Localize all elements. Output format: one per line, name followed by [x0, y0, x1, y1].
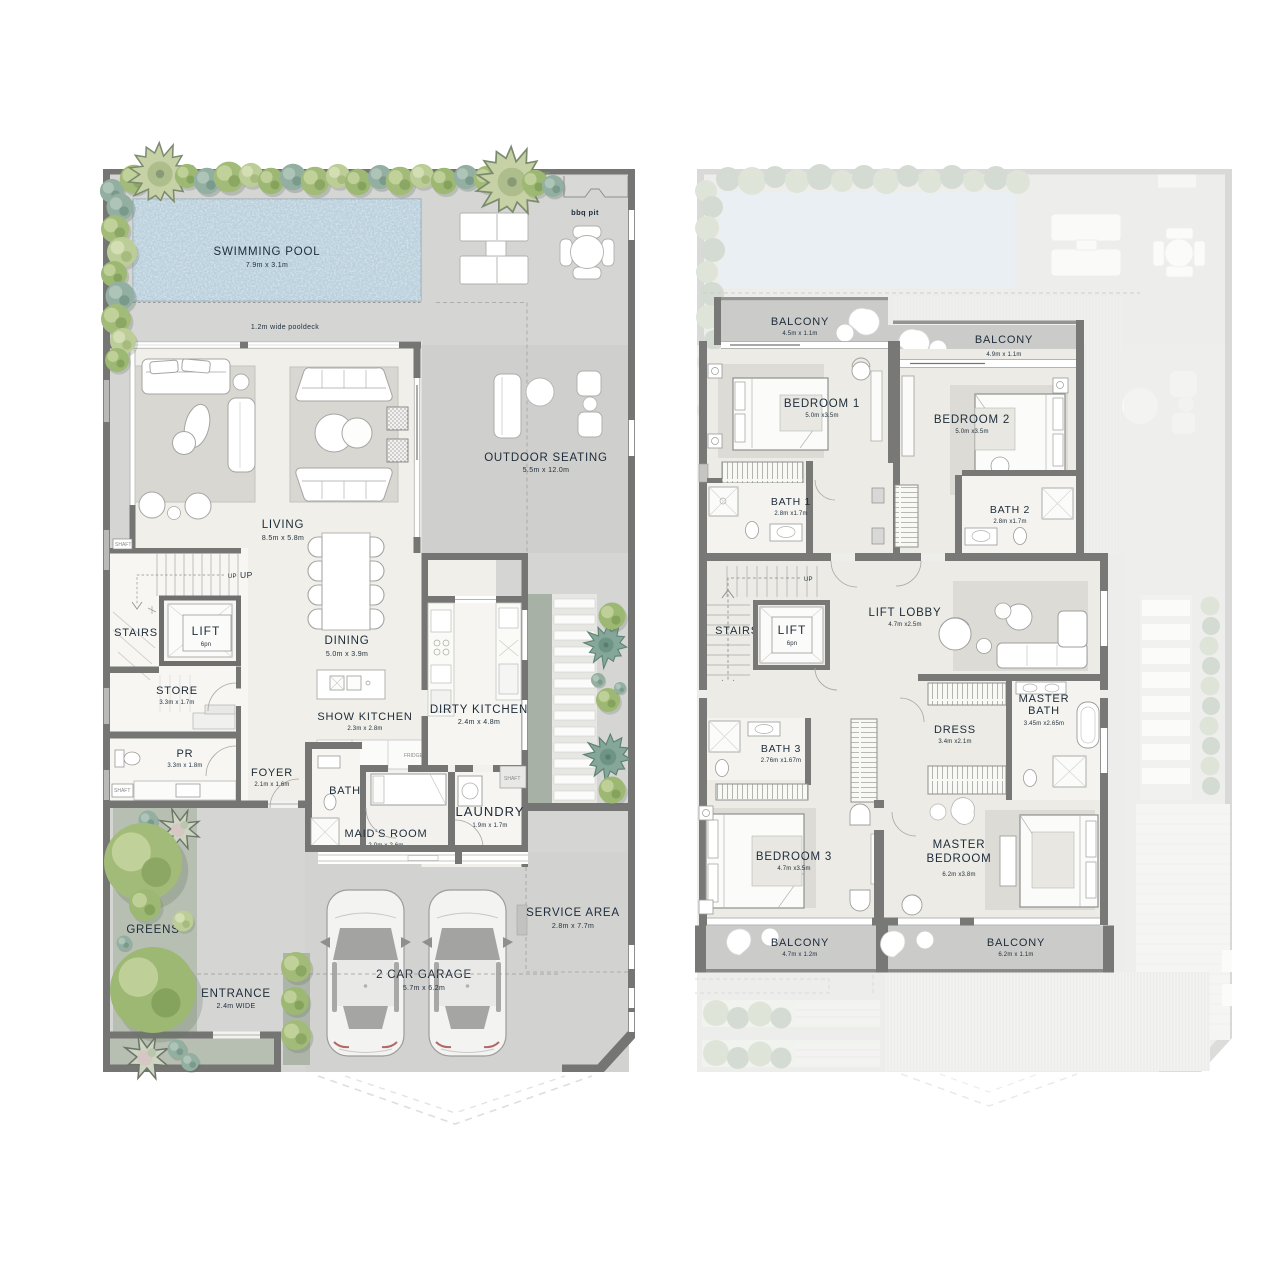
- svg-text:LIFT LOBBY: LIFT LOBBY: [869, 607, 942, 619]
- svg-text:BATH 3: BATH 3: [761, 743, 801, 755]
- svg-text:STAIRS: STAIRS: [715, 625, 759, 637]
- svg-text:6pn: 6pn: [787, 641, 798, 647]
- svg-text:2.8m x1.7m: 2.8m x1.7m: [774, 511, 807, 517]
- svg-text:4.5m x 1.1m: 4.5m x 1.1m: [782, 331, 817, 337]
- svg-text:5.5m x 12.0m: 5.5m x 12.0m: [523, 467, 570, 474]
- svg-text:4.7m x3.5m: 4.7m x3.5m: [777, 866, 810, 872]
- svg-text:MASTER: MASTER: [1019, 693, 1070, 705]
- svg-text:LIVING: LIVING: [262, 519, 305, 531]
- svg-text:DINING: DINING: [324, 635, 369, 647]
- svg-text:MASTER: MASTER: [933, 839, 986, 851]
- svg-text:BATH 2: BATH 2: [990, 504, 1030, 516]
- svg-text:LIFT: LIFT: [192, 624, 221, 638]
- svg-text:PR: PR: [177, 748, 194, 760]
- svg-text:BEDROOM 2: BEDROOM 2: [934, 414, 1010, 426]
- svg-text:2.4m WIDE: 2.4m WIDE: [217, 1003, 256, 1010]
- svg-text:BEDROOM 1: BEDROOM 1: [784, 398, 860, 410]
- svg-text:5.0m x 3.9m: 5.0m x 3.9m: [326, 651, 368, 658]
- svg-text:ENTRANCE: ENTRANCE: [201, 988, 271, 1000]
- svg-text:3.3m x 1.8m: 3.3m x 1.8m: [167, 763, 202, 769]
- svg-text:3.3m x 1.7m: 3.3m x 1.7m: [159, 700, 194, 706]
- svg-text:FRIDGE: FRIDGE: [404, 753, 424, 759]
- svg-text:SERVICE AREA: SERVICE AREA: [526, 907, 620, 919]
- svg-text:2 CAR GARAGE: 2 CAR GARAGE: [376, 969, 472, 981]
- svg-text:BATH 1: BATH 1: [771, 496, 811, 508]
- svg-text:2.4m x 4.8m: 2.4m x 4.8m: [458, 719, 500, 726]
- svg-text:6pn: 6pn: [201, 642, 212, 648]
- svg-text:BALCONY: BALCONY: [771, 937, 829, 949]
- svg-text:BATH: BATH: [1028, 705, 1060, 717]
- svg-text:4.9m x 1.1m: 4.9m x 1.1m: [986, 352, 1021, 358]
- svg-text:5.7m x 6.2m: 5.7m x 6.2m: [403, 985, 445, 992]
- svg-text:SHAFT: SHAFT: [504, 776, 520, 782]
- svg-text:DRESS: DRESS: [934, 724, 976, 736]
- svg-text:bbq pit: bbq pit: [571, 208, 599, 217]
- svg-text:1.2m wide pooldeck: 1.2m wide pooldeck: [251, 324, 319, 331]
- svg-text:2.3m x 2.8m: 2.3m x 2.8m: [347, 726, 382, 732]
- svg-text:UP: UP: [228, 574, 237, 580]
- svg-text:6.2m x3.8m: 6.2m x3.8m: [942, 872, 975, 878]
- svg-text:OUTDOOR SEATING: OUTDOOR SEATING: [484, 452, 608, 464]
- svg-text:SHAFT: SHAFT: [115, 542, 131, 548]
- svg-text:4.7m x2.5m: 4.7m x2.5m: [888, 622, 921, 628]
- svg-text:SHOW KITCHEN: SHOW KITCHEN: [317, 711, 412, 723]
- svg-text:LAUNDRY: LAUNDRY: [456, 804, 525, 819]
- svg-text:2.8m x1.7m: 2.8m x1.7m: [993, 519, 1026, 525]
- svg-text:2.76m x1.67m: 2.76m x1.67m: [761, 758, 801, 764]
- svg-text:6.2m x 1.1m: 6.2m x 1.1m: [998, 952, 1033, 958]
- svg-text:SHAFT: SHAFT: [114, 788, 130, 794]
- svg-text:STAIRS: STAIRS: [114, 627, 158, 639]
- svg-text:BALCONY: BALCONY: [987, 937, 1045, 949]
- svg-text:2.1m x 1.6m: 2.1m x 1.6m: [254, 782, 289, 788]
- svg-text:5.0m x3.5m: 5.0m x3.5m: [955, 429, 988, 435]
- svg-text:UP: UP: [804, 577, 813, 583]
- svg-text:MAID'S ROOM: MAID'S ROOM: [344, 828, 427, 840]
- svg-text:BEDROOM: BEDROOM: [926, 853, 991, 865]
- svg-text:LIFT: LIFT: [778, 623, 807, 637]
- svg-text:BALCONY: BALCONY: [975, 334, 1033, 346]
- svg-text:FOYER: FOYER: [251, 767, 293, 779]
- svg-text:1.9m x 1.7m: 1.9m x 1.7m: [472, 823, 507, 829]
- svg-text:BATH: BATH: [329, 785, 361, 797]
- svg-text:4.7m x 1.2m: 4.7m x 1.2m: [782, 952, 817, 958]
- svg-text:SWIMMING POOL: SWIMMING POOL: [214, 246, 321, 258]
- svg-text:8.5m x 5.8m: 8.5m x 5.8m: [262, 535, 304, 542]
- svg-text:3.4m x2.1m: 3.4m x2.1m: [938, 739, 971, 745]
- svg-text:DIRTY KITCHEN: DIRTY KITCHEN: [430, 704, 528, 716]
- svg-text:3.45m x2.65m: 3.45m x2.65m: [1024, 721, 1064, 727]
- svg-text:BEDROOM 3: BEDROOM 3: [756, 851, 832, 863]
- svg-text:UP: UP: [240, 570, 253, 580]
- svg-text:GREENS: GREENS: [126, 924, 179, 936]
- svg-text:STORE: STORE: [156, 685, 198, 697]
- svg-text:2.8m x 7.7m: 2.8m x 7.7m: [552, 923, 594, 930]
- svg-text:BALCONY: BALCONY: [771, 316, 829, 328]
- svg-text:7.9m x 3.1m: 7.9m x 3.1m: [246, 262, 288, 269]
- svg-text:5.0m x3.5m: 5.0m x3.5m: [805, 413, 838, 419]
